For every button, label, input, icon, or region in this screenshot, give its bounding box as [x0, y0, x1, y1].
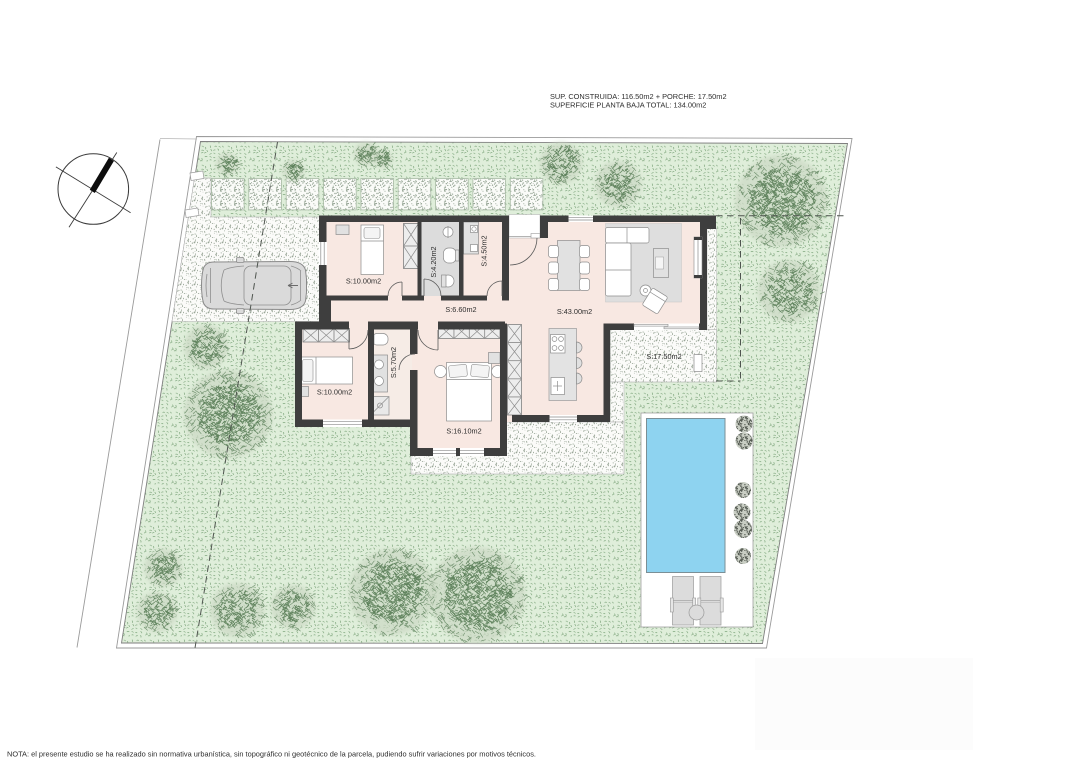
- svg-text:S:10.00m2: S:10.00m2: [346, 277, 381, 286]
- svg-text:S:10.00m2: S:10.00m2: [317, 388, 352, 397]
- svg-text:S:6.60m2: S:6.60m2: [445, 305, 476, 314]
- svg-text:S:4.50m2: S:4.50m2: [480, 235, 489, 266]
- svg-text:S:43.00m2: S:43.00m2: [557, 307, 592, 316]
- svg-text:SUPERFICIE PLANTA BAJA TOTAL:: SUPERFICIE PLANTA BAJA TOTAL: 134.00m2: [550, 101, 706, 110]
- svg-text:S:17.50m2: S:17.50m2: [646, 352, 681, 361]
- svg-text:S:4.20m2: S:4.20m2: [429, 246, 438, 277]
- svg-text:S:16.10m2: S:16.10m2: [446, 427, 481, 436]
- svg-text:S:5.70m2: S:5.70m2: [389, 347, 398, 378]
- svg-text:NOTA: el presente estudio se h: NOTA: el presente estudio se ha realizad…: [7, 750, 536, 759]
